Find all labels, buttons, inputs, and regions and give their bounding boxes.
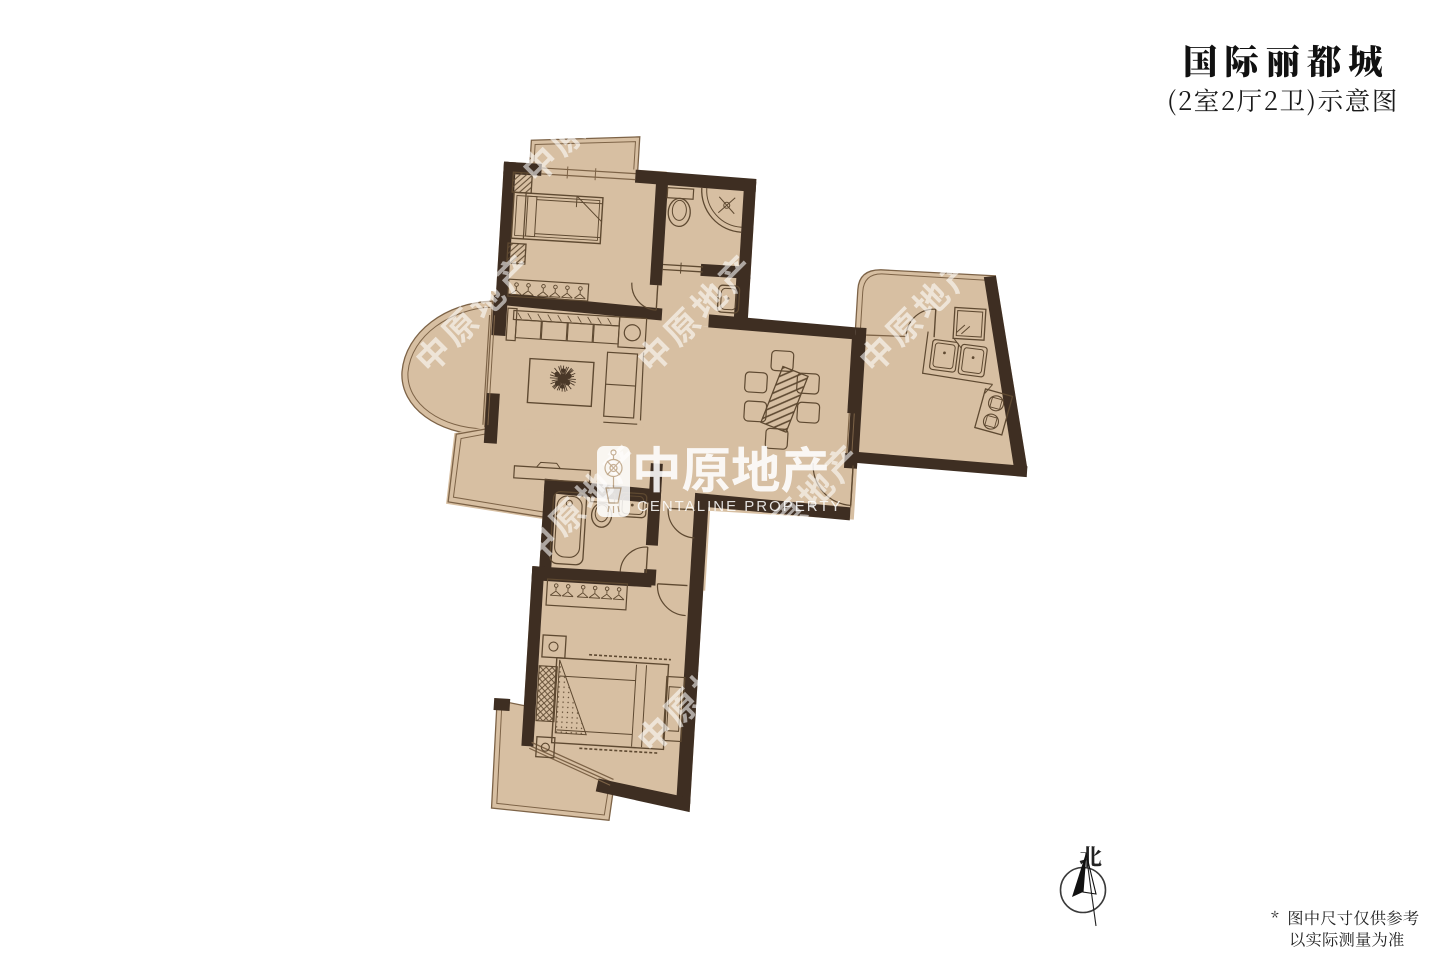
svg-text:CENTALINE PROPERTY: CENTALINE PROPERTY: [637, 498, 842, 515]
